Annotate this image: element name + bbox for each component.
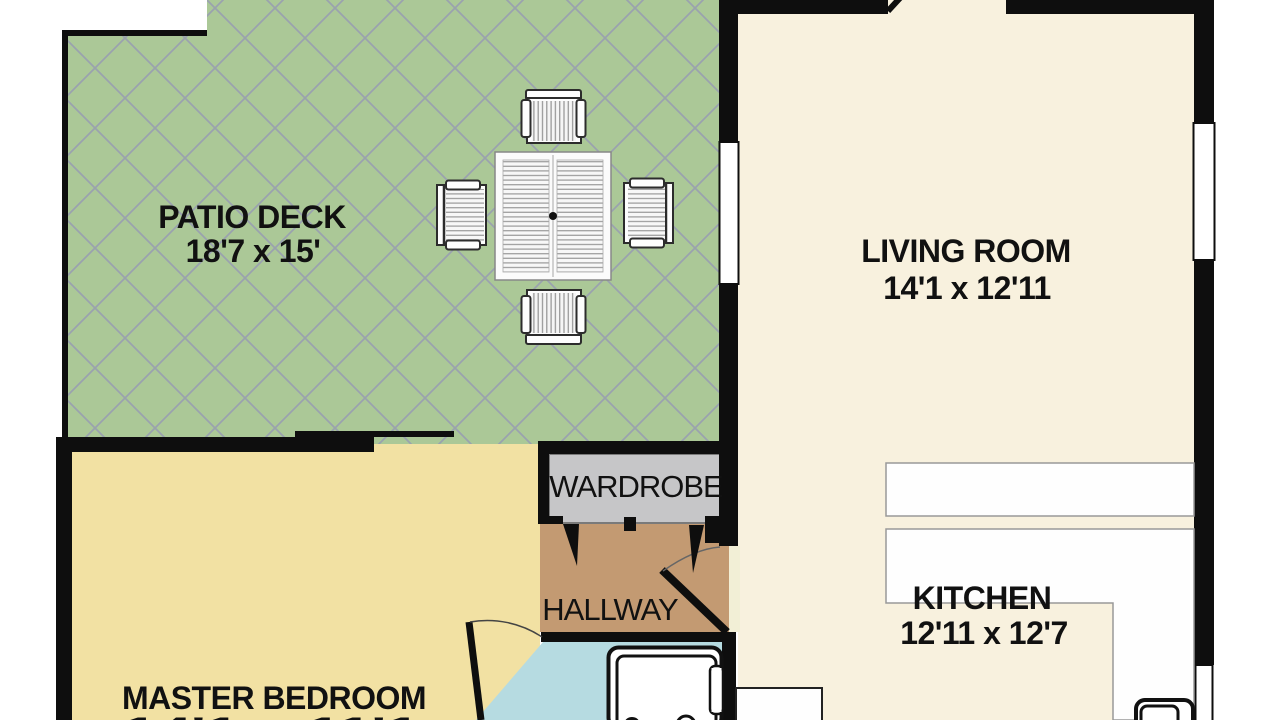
svg-text:HALLWAY: HALLWAY [542,592,678,627]
svg-text:18'7 x 15': 18'7 x 15' [186,233,321,269]
svg-text:WARDROBE: WARDROBE [549,469,723,504]
svg-text:KITCHEN: KITCHEN [913,580,1052,616]
svg-text:12'11 x 12'7: 12'11 x 12'7 [900,615,1068,651]
svg-text:PATIO DECK: PATIO DECK [158,199,346,235]
svg-text:14'1 x 11'1: 14'1 x 11'1 [123,711,420,720]
svg-text:14'1 x 12'11: 14'1 x 12'11 [883,270,1051,306]
svg-text:LIVING ROOM: LIVING ROOM [861,233,1071,269]
